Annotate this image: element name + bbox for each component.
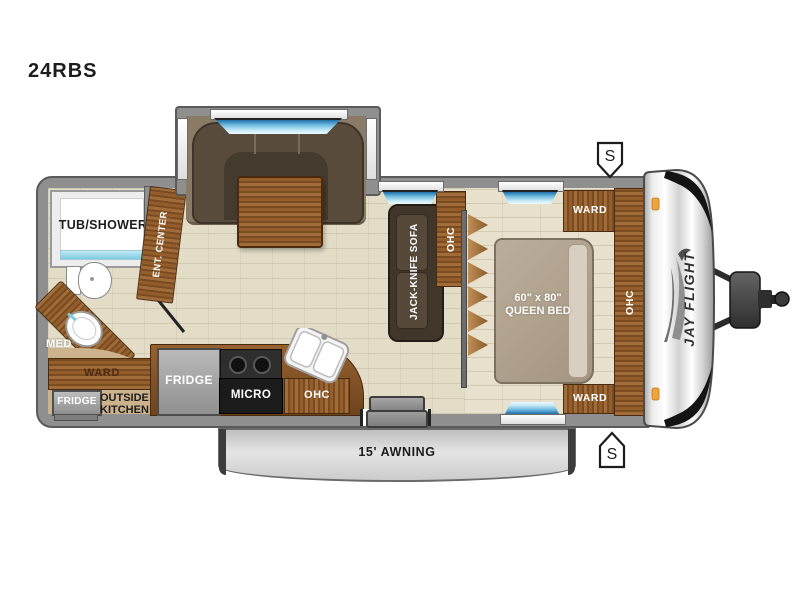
chevron-shelves (468, 214, 490, 358)
kitchen-window-glass (382, 190, 438, 204)
stab-jack-bottom-letter: S (607, 446, 618, 463)
stab-jack-badge-bottom: S (598, 431, 626, 469)
door-jamb-left (360, 409, 363, 426)
bath-ward: WARD (48, 358, 156, 390)
ent-center-label: ENT. CENTER (150, 197, 173, 294)
entry-step-lower (366, 410, 428, 428)
kitchen-ohc-label: OHC (285, 389, 349, 402)
bedroom-top-window-glass (502, 190, 558, 204)
ward-bottom: WARD (563, 384, 617, 414)
hitch-coupler (758, 290, 789, 308)
cooktop (220, 349, 282, 379)
tub-water-line (60, 250, 144, 260)
ward-top: WARD (563, 190, 617, 232)
sofa-ohc-label: OHC (445, 198, 457, 280)
ward-top-label: WARD (564, 204, 616, 216)
slideout-window-top-glass (214, 118, 342, 134)
slideout-window-right (366, 118, 377, 180)
kitchen-fridge-label: FRIDGE (159, 374, 219, 388)
bed-label: 60" x 80" QUEEN BED (496, 292, 580, 317)
bath-ward-label: WARD (49, 367, 155, 380)
dinette-table (237, 176, 323, 248)
partition-wall (461, 210, 467, 388)
queen-bed: 60" x 80" QUEEN BED (494, 238, 594, 384)
bedroom-ohc-label: OHC (624, 279, 636, 325)
marker-light-bottom (652, 388, 659, 400)
outside-kitchen-label: OUTSIDE KITCHEN (100, 392, 149, 416)
tub-shower-label: TUB/SHOWER (52, 218, 154, 232)
sofa-label: JACK-KNIFE SOFA (409, 212, 421, 332)
brand-logo-text: JAY FLIGHT (681, 251, 697, 346)
bedroom-bottom-window-frame (500, 414, 566, 425)
awning-label: 15' AWNING (220, 445, 574, 459)
kitchen-sink (278, 328, 364, 386)
front-cap: JAY FLIGHT (642, 168, 792, 430)
ward-bottom-label: WARD (564, 392, 616, 404)
stab-jack-top-letter: S (605, 148, 616, 165)
propane-cover (730, 272, 760, 328)
outside-kitchen-fridge: FRIDGE (52, 390, 102, 416)
slideout-window-left (177, 118, 188, 180)
microwave: MICRO (219, 378, 283, 414)
door-jamb-right (428, 409, 431, 426)
floorplan-page: 24RBS TUB/SHOWER MED WARD FRIDGE OUTSIDE… (0, 0, 800, 600)
stab-jack-badge-top: S (596, 141, 624, 179)
microwave-label: MICRO (220, 389, 282, 402)
marker-light-top (652, 198, 659, 210)
model-title: 24RBS (28, 60, 97, 83)
outside-fridge-tray (54, 414, 98, 421)
tub-shower: TUB/SHOWER (50, 190, 156, 268)
outside-fridge-label: FRIDGE (54, 396, 100, 408)
awning: 15' AWNING (218, 428, 576, 482)
kitchen-fridge: FRIDGE (157, 348, 221, 416)
